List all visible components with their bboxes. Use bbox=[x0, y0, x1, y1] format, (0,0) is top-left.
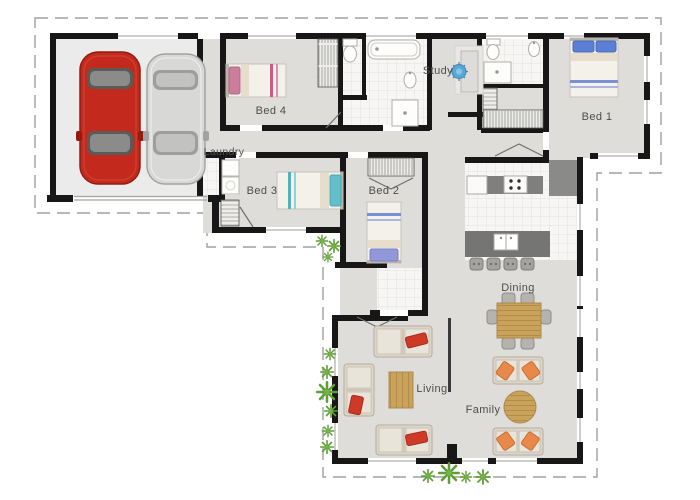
silver-car bbox=[143, 54, 209, 184]
vanity-basin bbox=[404, 72, 416, 88]
room-label-study: Study bbox=[423, 65, 453, 77]
room-label-bed4: Bed 4 bbox=[256, 105, 287, 117]
red-car bbox=[76, 52, 144, 184]
laundry-fixtures bbox=[222, 160, 239, 194]
bed4-furniture bbox=[226, 64, 286, 97]
dining-table bbox=[497, 303, 541, 338]
bed2-wardrobe bbox=[368, 158, 414, 176]
coffee-table bbox=[389, 372, 413, 408]
stove bbox=[504, 176, 527, 193]
family-round-table bbox=[504, 391, 536, 423]
room-label-bed2: Bed 2 bbox=[369, 185, 400, 197]
bed1-walk-in-robe bbox=[483, 110, 543, 128]
bed1-furniture bbox=[570, 38, 618, 97]
room-label-bed1: Bed 1 bbox=[582, 111, 613, 123]
floor-plan: Bed 4 Laundry Bed 3 Bed 2 Study Bed 1 Di… bbox=[0, 0, 700, 500]
room-label-bed3: Bed 3 bbox=[247, 185, 278, 197]
bed3-furniture bbox=[277, 172, 343, 209]
bed4-wardrobe bbox=[318, 39, 338, 87]
room-label-living: Living bbox=[416, 383, 447, 395]
room-label-laundry: Laundry bbox=[204, 146, 245, 158]
linen-shelves bbox=[483, 88, 497, 110]
floorplan-drawing bbox=[0, 0, 700, 500]
bed3-linen bbox=[221, 200, 239, 226]
sofa bbox=[344, 364, 374, 416]
bed2-furniture bbox=[367, 202, 401, 263]
room-label-dining: Dining bbox=[501, 282, 535, 294]
family-seat bbox=[493, 428, 543, 455]
family-seat bbox=[493, 357, 543, 384]
sofa bbox=[376, 425, 432, 455]
study-furniture bbox=[450, 46, 483, 94]
sofa bbox=[374, 326, 432, 357]
washing-machine bbox=[222, 177, 239, 194]
room-label-family: Family bbox=[466, 404, 501, 416]
